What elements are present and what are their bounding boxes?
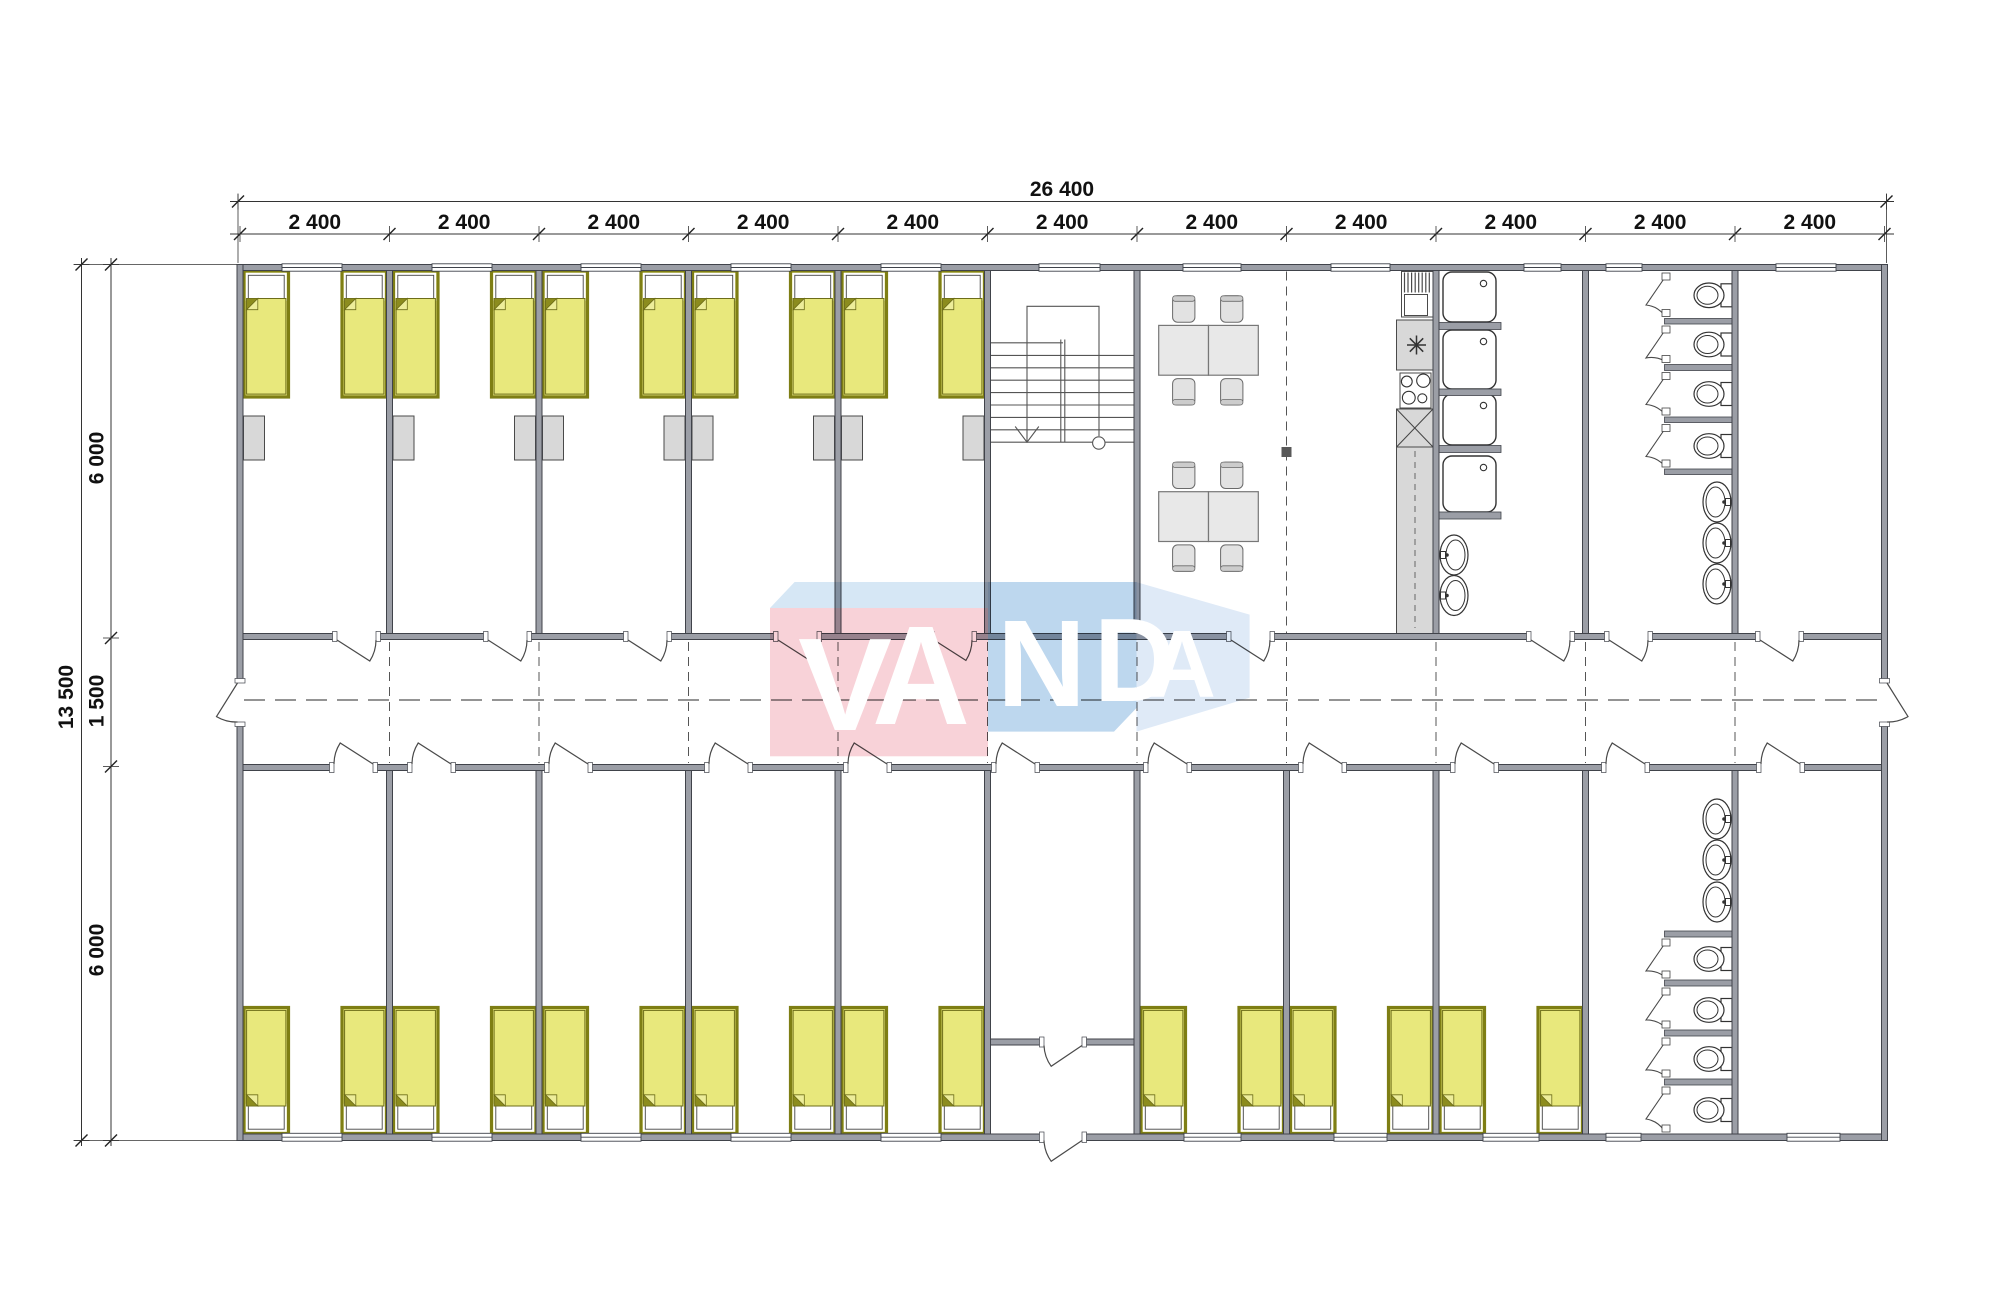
svg-text:N: N xyxy=(997,596,1086,733)
svg-text:A: A xyxy=(1148,611,1216,718)
svg-text:6 000: 6 000 xyxy=(86,924,109,977)
svg-text:2 400: 2 400 xyxy=(588,211,641,234)
svg-text:6 000: 6 000 xyxy=(86,432,109,485)
svg-text:A: A xyxy=(872,596,970,754)
svg-text:2 400: 2 400 xyxy=(289,211,342,234)
svg-text:2 400: 2 400 xyxy=(1335,211,1388,234)
svg-text:2 400: 2 400 xyxy=(1186,211,1239,234)
svg-text:2 400: 2 400 xyxy=(438,211,491,234)
svg-text:26 400: 26 400 xyxy=(1030,178,1094,201)
svg-text:2 400: 2 400 xyxy=(1036,211,1089,234)
svg-text:2 400: 2 400 xyxy=(1634,211,1687,234)
svg-text:2 400: 2 400 xyxy=(737,211,790,234)
svg-text:2 400: 2 400 xyxy=(1784,211,1837,234)
svg-text:13 500: 13 500 xyxy=(55,665,78,729)
svg-text:1 500: 1 500 xyxy=(86,675,109,728)
svg-text:2 400: 2 400 xyxy=(1485,211,1538,234)
svg-text:2 400: 2 400 xyxy=(887,211,940,234)
